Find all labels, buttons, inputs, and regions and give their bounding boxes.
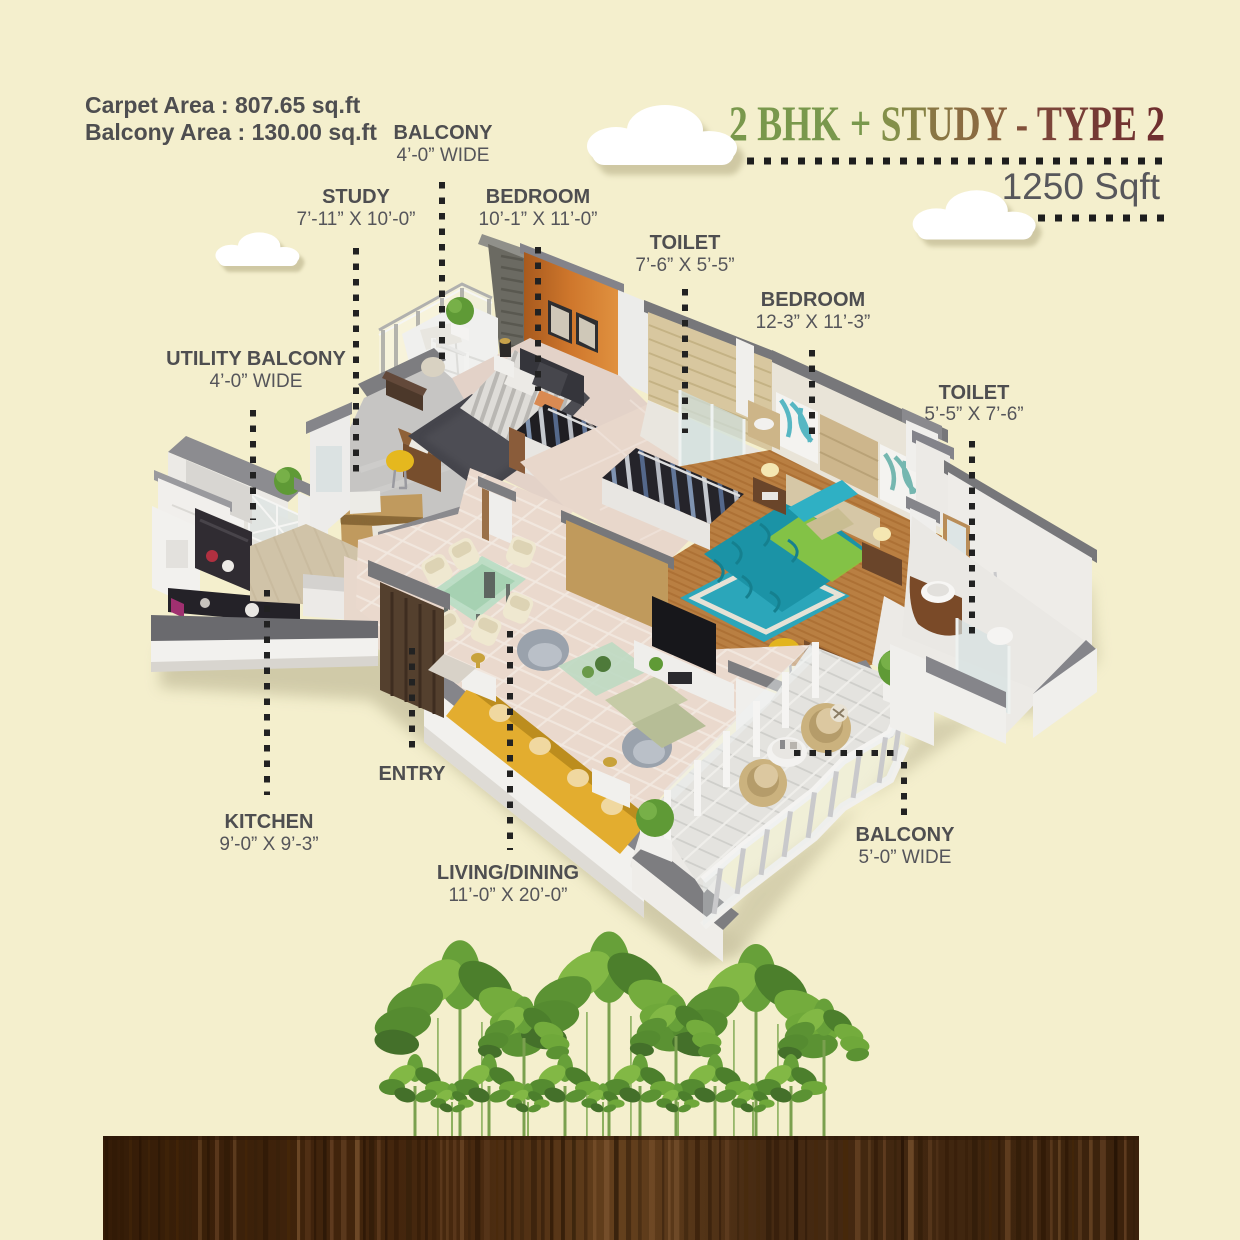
svg-text:7’-6” X 5’-5”: 7’-6” X 5’-5” bbox=[635, 255, 734, 276]
svg-text:BALCONY: BALCONY bbox=[394, 122, 494, 144]
svg-text:4’-0” WIDE: 4’-0” WIDE bbox=[397, 145, 490, 166]
svg-text:4’-0” WIDE: 4’-0” WIDE bbox=[210, 371, 303, 392]
svg-text:1250 Sqft: 1250 Sqft bbox=[1002, 166, 1161, 207]
svg-text:LIVING/DINING: LIVING/DINING bbox=[437, 862, 579, 884]
svg-text:9’-0” X 9’-3”: 9’-0” X 9’-3” bbox=[219, 834, 318, 855]
svg-text:BEDROOM: BEDROOM bbox=[486, 186, 590, 208]
svg-text:12-3” X 11’-3”: 12-3” X 11’-3” bbox=[756, 312, 871, 333]
svg-text:KITCHEN: KITCHEN bbox=[225, 811, 314, 833]
svg-text:BALCONY: BALCONY bbox=[856, 824, 956, 846]
svg-text:5’-5” X 7’-6”: 5’-5” X 7’-6” bbox=[924, 404, 1023, 425]
svg-text:Balcony Area : 130.00 sq.ft: Balcony Area : 130.00 sq.ft bbox=[85, 119, 377, 145]
svg-text:BEDROOM: BEDROOM bbox=[761, 289, 865, 311]
svg-text:STUDY: STUDY bbox=[322, 186, 390, 208]
svg-text:TOILET: TOILET bbox=[939, 382, 1010, 404]
svg-text:11’-0” X 20’-0”: 11’-0” X 20’-0” bbox=[449, 885, 568, 906]
svg-text:UTILITY BALCONY: UTILITY BALCONY bbox=[166, 348, 346, 370]
svg-text:ENTRY: ENTRY bbox=[378, 763, 446, 785]
svg-text:10’-1” X 11’-0”: 10’-1” X 11’-0” bbox=[479, 209, 598, 230]
svg-text:7’-11” X 10’-0”: 7’-11” X 10’-0” bbox=[297, 209, 416, 230]
svg-text:Carpet Area : 807.65 sq.ft: Carpet Area : 807.65 sq.ft bbox=[85, 92, 361, 118]
svg-text:2 BHK + STUDY - TYPE 2: 2 BHK + STUDY - TYPE 2 bbox=[729, 95, 1165, 151]
svg-text:5’-0” WIDE: 5’-0” WIDE bbox=[859, 847, 952, 868]
svg-text:TOILET: TOILET bbox=[650, 232, 721, 254]
